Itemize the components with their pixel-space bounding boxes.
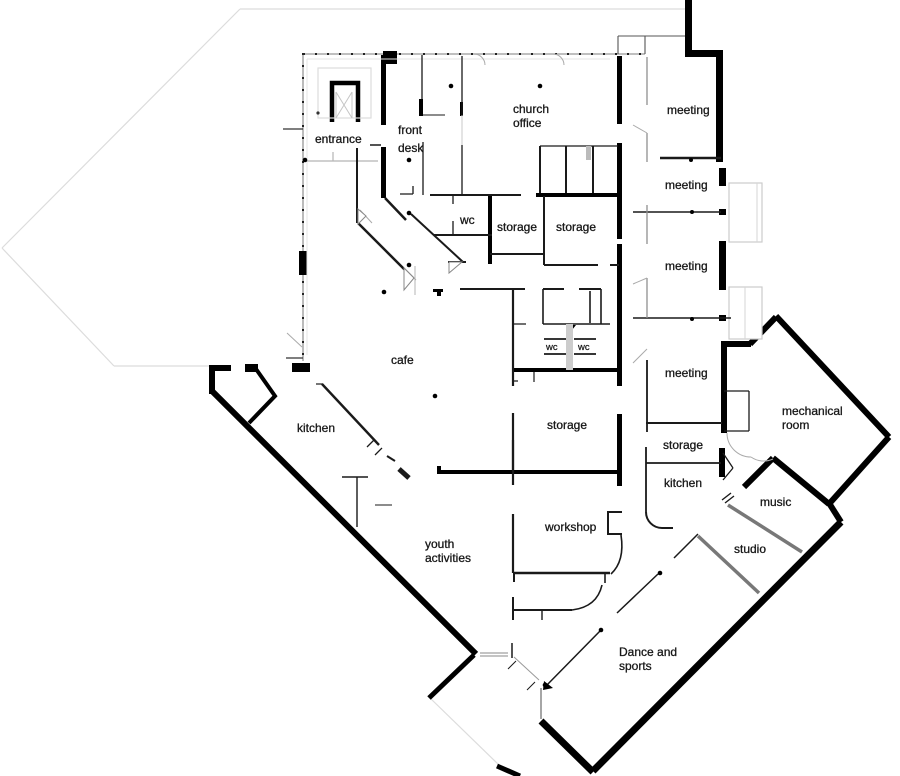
- svg-text:activities: activities: [425, 551, 471, 565]
- svg-text:wc: wc: [545, 342, 558, 353]
- svg-text:meeting: meeting: [665, 366, 708, 380]
- svg-text:studio: studio: [734, 542, 766, 556]
- svg-text:cafe: cafe: [391, 353, 414, 367]
- svg-text:storage: storage: [497, 220, 537, 234]
- svg-text:entrance: entrance: [315, 132, 362, 146]
- svg-text:office: office: [513, 116, 542, 130]
- svg-text:storage: storage: [663, 438, 703, 452]
- svg-text:meeting: meeting: [665, 259, 708, 273]
- svg-text:room: room: [782, 418, 809, 432]
- svg-text:front: front: [398, 123, 423, 137]
- svg-text:mechanical: mechanical: [782, 404, 843, 418]
- svg-text:wc: wc: [577, 342, 590, 353]
- svg-text:church: church: [513, 102, 549, 116]
- svg-text:sports: sports: [619, 659, 652, 673]
- svg-text:workshop: workshop: [544, 520, 597, 534]
- svg-text:Dance and: Dance and: [619, 645, 677, 659]
- svg-text:kitchen: kitchen: [664, 476, 702, 490]
- svg-text:wc: wc: [459, 213, 475, 227]
- svg-text:youth: youth: [425, 537, 454, 551]
- svg-text:storage: storage: [547, 418, 587, 432]
- svg-text:desk: desk: [398, 141, 424, 155]
- svg-text:meeting: meeting: [667, 103, 710, 117]
- svg-text:kitchen: kitchen: [297, 421, 335, 435]
- svg-text:meeting: meeting: [665, 178, 708, 192]
- svg-text:music: music: [760, 495, 791, 509]
- svg-text:storage: storage: [556, 220, 596, 234]
